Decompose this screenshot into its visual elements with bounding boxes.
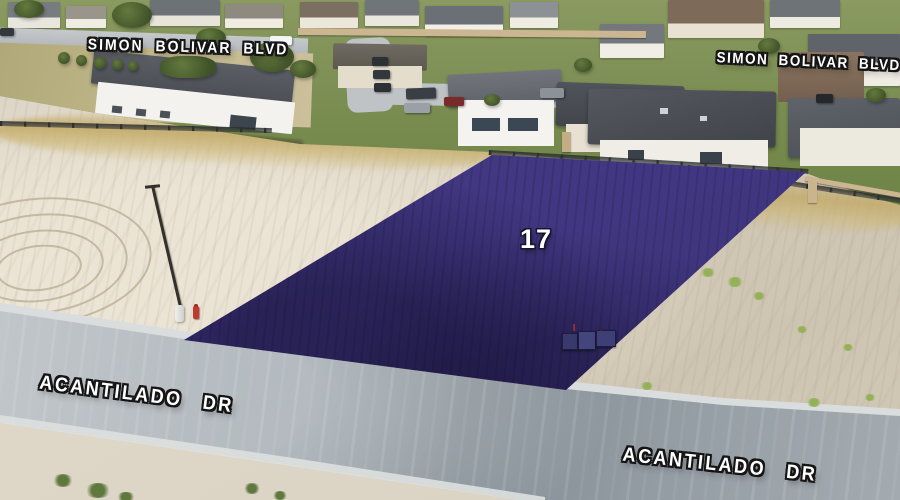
lot-number-label: 17 [520,224,552,255]
grass-tuft [842,344,854,351]
shrub [52,474,74,487]
sign-flag [573,324,575,331]
palm-tree [94,57,106,69]
sign-structure [560,324,616,352]
tree [484,94,500,106]
palm-tree [58,52,70,64]
tree [112,2,152,28]
grass-tuft [806,398,822,407]
sign-post [600,326,602,331]
house-roof [588,88,777,147]
parked-car [373,70,390,79]
suv [404,103,430,113]
wall-pillar [808,181,817,203]
house [770,0,840,28]
house [365,0,419,26]
aerial-lot-photo: SIMON BOLIVAR BLVD SIMON BOLIVAR BLVD AC… [0,0,900,500]
grass-tuft [700,268,716,277]
bush-row [160,56,216,78]
perimeter-wall [298,28,646,38]
house [600,24,664,58]
grass-tuft [752,292,766,300]
house [668,0,764,38]
fire-hydrant [193,306,199,319]
car [816,94,833,103]
grass-tuft [864,394,876,401]
roof-vent [660,108,668,114]
window [508,118,538,131]
palm-tree [112,59,123,70]
window [136,108,147,116]
red-car [444,97,464,106]
wall-pillar [562,132,571,152]
sign-panel [596,330,616,347]
tree [14,0,44,18]
house [300,2,358,28]
grass-tuft [640,382,654,390]
shrub [116,492,136,500]
grass-tuft [796,326,808,333]
house [800,128,900,166]
tree [574,58,592,72]
tree [290,60,316,78]
palm-tree [76,55,87,66]
window [472,118,500,131]
roof-vent [700,116,707,121]
house [150,0,220,26]
pickup-truck [406,87,436,99]
window [160,110,171,118]
parked-car [372,57,388,66]
parked-car [374,83,391,92]
house [66,6,106,28]
gray-truck [540,88,564,98]
tree [866,88,886,102]
house [510,2,558,28]
palm-tree [128,61,138,71]
grass-tuft [726,277,744,287]
sign-panel [562,333,578,350]
house [225,4,283,28]
shrub [272,491,288,500]
sign-panel [578,331,596,350]
car [0,28,14,36]
shrub [243,483,261,494]
pole-base [175,305,184,322]
shrub [84,483,112,498]
window [112,105,123,113]
